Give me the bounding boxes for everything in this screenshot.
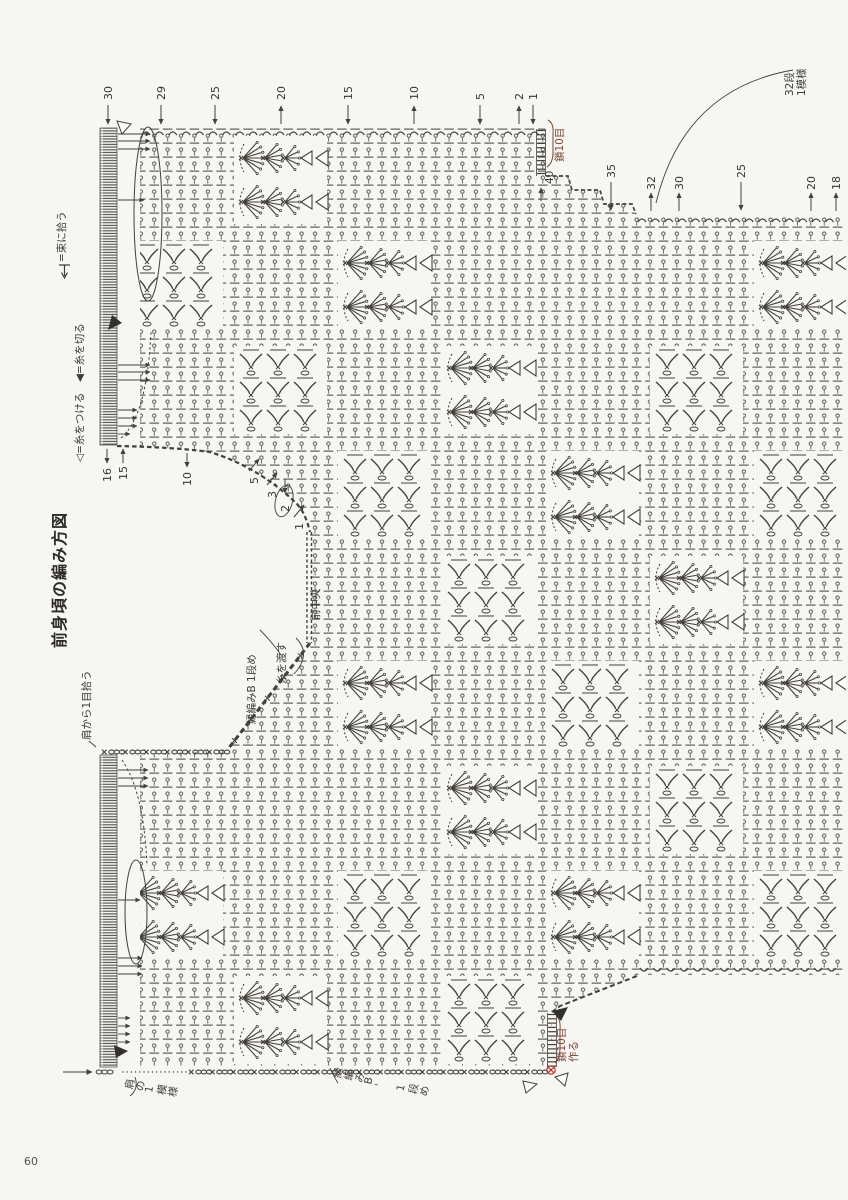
v-stitch-motif-block (338, 451, 431, 539)
fan-motif-block (754, 241, 848, 329)
row-number-top-30: 30 (102, 86, 115, 100)
fan-motif-block (234, 976, 328, 1064)
row-number-right-20: 20 (805, 176, 818, 190)
v-stitch-motif-block (650, 346, 743, 434)
row-number-neck-2: 2 (279, 505, 292, 512)
row-number-neck-10: 10 (181, 472, 194, 486)
row-number-neck-16: 16 (101, 468, 114, 482)
fan-motif-block (338, 661, 432, 749)
page-title: 前身頃の編み方図 (50, 512, 69, 648)
fan-motif-block (442, 346, 536, 434)
fan-motif-block (546, 871, 640, 959)
attach-yarn-marker-1 (555, 1073, 568, 1086)
row-number-right-18: 18 (830, 176, 843, 190)
chain10-make-label: 鎖10目 作る (556, 1028, 580, 1062)
row-number-right-35: 35 (605, 164, 618, 178)
fan-motif-block (754, 661, 848, 749)
crochet-chart (0, 0, 848, 1200)
bundle-pickup-symbol (59, 265, 70, 278)
row-number-right-30: 30 (673, 176, 686, 190)
v-stitch-motif-block (650, 766, 743, 854)
attach-yarn-marker-2 (523, 1081, 537, 1093)
row-number-right-25: 25 (735, 164, 748, 178)
v-stitch-motif-block (234, 346, 327, 434)
fan-motif-block (442, 766, 536, 854)
legend-yarn-marks: ◁=糸をつける ◀=糸を切る (74, 323, 86, 462)
legend-bundle-pickup: =束に拾う (56, 211, 68, 262)
row-number-right-32: 32 (645, 176, 658, 190)
pickup-from-shoulder-label: 肩から1目拾う (81, 670, 93, 740)
v-stitch-motif-block (338, 871, 431, 959)
v-stitch-motif-block (130, 241, 223, 329)
page-number: 60 (24, 1155, 38, 1168)
fan-motif-block (338, 241, 432, 329)
pattern-repeat-label: 32段 1模様 (784, 68, 808, 96)
cut-yarn-marker-lower (114, 1045, 128, 1058)
edging-b-label: 縁編みB 1段め (246, 654, 258, 724)
fan-motif-block (234, 136, 328, 224)
v-stitch-motif-block (754, 871, 847, 959)
row-number-top-25: 25 (209, 86, 222, 100)
row-number-top-15: 15 (342, 86, 355, 100)
fan-motif-block (546, 451, 640, 539)
v-stitch-motif-block (442, 556, 535, 644)
row-number-top-20: 20 (275, 86, 288, 100)
row-number-top-5: 5 (474, 93, 487, 100)
front-center-label: 前中央 (310, 589, 322, 621)
carry-yarn-label: 糸を渡す (276, 642, 288, 684)
row-number-top-2: 2 (513, 93, 526, 100)
shoulder-hatch-bars (100, 128, 117, 1067)
row-number-top-1: 1 (527, 93, 540, 100)
chain10-top-label: 鎖10目 (554, 128, 566, 162)
row-number-neck-15: 15 (117, 466, 130, 480)
start-flag-marker (117, 121, 131, 134)
scanned-pattern-page: 前身頃の編み方図 =束に拾う ◁=糸をつける ◀=糸を切る 32段 1模様 鎖1… (0, 0, 848, 1200)
v-stitch-motif-block (442, 976, 535, 1064)
row-number-neck-5: 5 (248, 477, 261, 484)
row-number-top-10: 10 (408, 86, 421, 100)
row-number-neck-3: 3 (266, 491, 279, 498)
v-stitch-motif-block (546, 661, 639, 749)
start-ring-marker (547, 1066, 555, 1074)
row-number-neck-1: 1 (293, 523, 306, 530)
fan-motif-block (650, 556, 744, 644)
row40-label: 40 (544, 171, 556, 184)
row-number-top-29: 29 (155, 86, 168, 100)
v-stitch-motif-block (754, 451, 847, 539)
